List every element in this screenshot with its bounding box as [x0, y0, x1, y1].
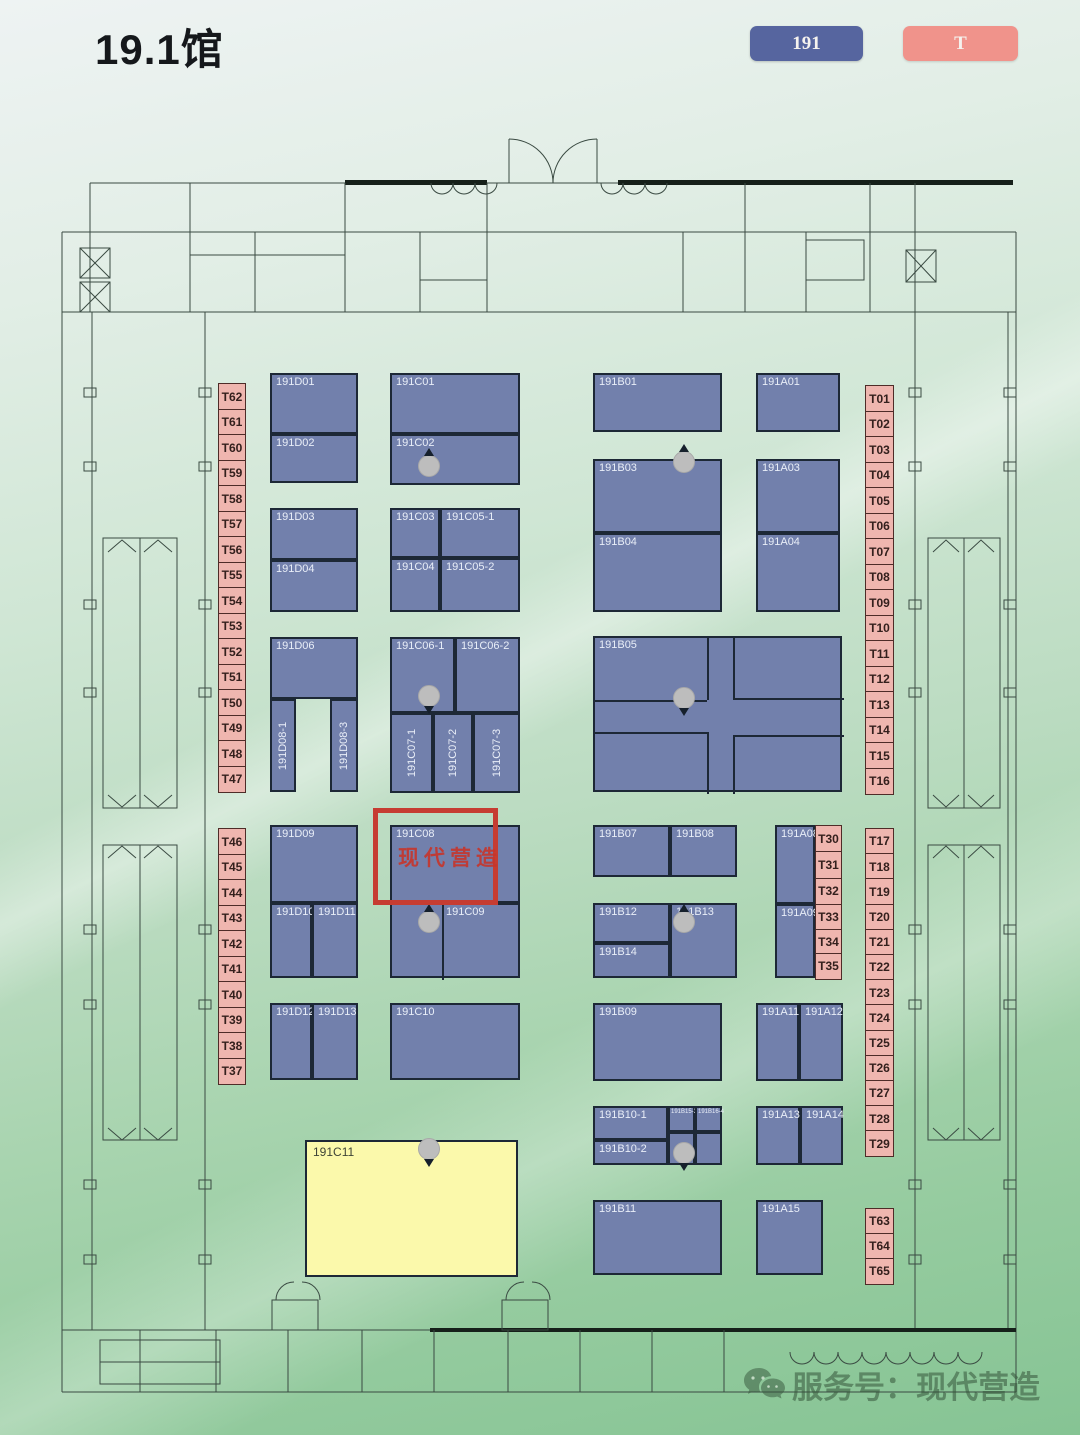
booth-191B15-3[interactable]: 191B15-3 — [668, 1106, 695, 1132]
booth-label: 191D04 — [276, 563, 315, 575]
booth-191C10[interactable]: 191C10 — [390, 1003, 520, 1080]
booth-label: 191B16-4 — [698, 1109, 724, 1115]
booth-T54[interactable]: T54 — [218, 587, 246, 614]
booth-label: 191D03 — [276, 511, 315, 523]
booth-T32[interactable]: T32 — [815, 878, 842, 906]
booth-191D12[interactable]: 191D12 — [270, 1003, 312, 1080]
booth-191A11[interactable]: 191A11 — [756, 1003, 799, 1081]
booth-label: 191A14 — [806, 1109, 844, 1121]
booth-T34[interactable]: T34 — [815, 929, 842, 955]
booth-191A04[interactable]: 191A04 — [756, 533, 840, 612]
booth-T05[interactable]: T05 — [865, 487, 894, 514]
booth-T13[interactable]: T13 — [865, 691, 894, 718]
booth-label: 191C05-2 — [446, 561, 494, 573]
booth-T12[interactable]: T12 — [865, 666, 894, 693]
booth-T02[interactable]: T02 — [865, 411, 894, 438]
booth-divider — [595, 732, 707, 734]
booth-label: 191B15-3 — [671, 1109, 697, 1115]
booth-label: 191C07-2 — [447, 729, 459, 777]
booth-T53[interactable]: T53 — [218, 613, 246, 640]
booth-label: 191A15 — [762, 1203, 800, 1215]
booth-label: 191D02 — [276, 437, 315, 449]
booth-label: 191B12 — [599, 906, 637, 918]
booth-T18[interactable]: T18 — [865, 853, 894, 880]
booth-191C07-1[interactable]: 191C07-1 — [390, 713, 433, 793]
booth-unlabeled[interactable] — [695, 1132, 722, 1165]
booth-T39[interactable]: T39 — [218, 1007, 246, 1034]
booth-191B12[interactable]: 191B12 — [593, 903, 670, 943]
booth-T40[interactable]: T40 — [218, 981, 246, 1008]
booth-T14[interactable]: T14 — [865, 717, 894, 744]
column-pillar-icon — [673, 1142, 695, 1164]
booth-label: 191A11 — [762, 1006, 799, 1018]
booth-T41[interactable]: T41 — [218, 956, 246, 983]
booth-191C04[interactable]: 191C04 — [390, 558, 440, 612]
booth-191B11[interactable]: 191B11 — [593, 1200, 722, 1275]
booth-T57[interactable]: T57 — [218, 511, 246, 538]
booth-label: 191B11 — [599, 1203, 636, 1215]
booth-divider — [707, 732, 709, 794]
booth-T26[interactable]: T26 — [865, 1055, 894, 1082]
booth-T23[interactable]: T23 — [865, 979, 894, 1006]
booth-191A09[interactable]: 191A09 — [775, 904, 815, 978]
booth-191A14[interactable]: 191A14 — [800, 1106, 843, 1165]
booth-T28[interactable]: T28 — [865, 1105, 894, 1132]
booth-191D08-3[interactable]: 191D08-3 — [330, 699, 358, 792]
booth-T04[interactable]: T04 — [865, 462, 894, 489]
booth-T47[interactable]: T47 — [218, 766, 246, 793]
booth-label: 191C03 — [396, 511, 435, 523]
booth-label: 191D10 — [276, 906, 315, 918]
booth-T37[interactable]: T37 — [218, 1058, 246, 1085]
booth-191B04[interactable]: 191B04 — [593, 533, 722, 612]
booth-label: 191B01 — [599, 376, 637, 388]
booth-191A15[interactable]: 191A15 — [756, 1200, 823, 1275]
booth-T31[interactable]: T31 — [815, 851, 842, 879]
column-pillar-icon — [418, 1138, 440, 1160]
column-pillar-icon — [673, 687, 695, 709]
booth-T17[interactable]: T17 — [865, 828, 894, 855]
booth-191B10-2[interactable]: 191B10-2 — [593, 1140, 668, 1165]
booth-191B08[interactable]: 191B08 — [670, 825, 737, 877]
booth-T30[interactable]: T30 — [815, 825, 842, 853]
booth-divider — [733, 638, 735, 698]
booth-divider — [733, 735, 735, 794]
booth-label: 191A04 — [762, 536, 800, 548]
booth-label: 191D08-1 — [277, 721, 289, 769]
booth-label: 191C06-1 — [396, 640, 444, 652]
booth-191C02[interactable]: 191C02 — [390, 434, 520, 485]
booth-191B01[interactable]: 191B01 — [593, 373, 722, 432]
booth-191D02[interactable]: 191D02 — [270, 434, 358, 483]
booth-T09[interactable]: T09 — [865, 589, 894, 616]
booth-T21[interactable]: T21 — [865, 929, 894, 956]
booth-T46[interactable]: T46 — [218, 828, 246, 855]
booth-T27[interactable]: T27 — [865, 1080, 894, 1107]
booth-divider — [733, 698, 844, 700]
booth-label: 191A12 — [805, 1006, 843, 1018]
booth-191C05-1[interactable]: 191C05-1 — [440, 508, 520, 558]
booth-T07[interactable]: T07 — [865, 538, 894, 565]
booth-T01[interactable]: T01 — [865, 385, 894, 412]
booth-label: 191B07 — [599, 828, 637, 840]
booth-label: 191A08 — [781, 828, 819, 840]
column-pillar-icon — [418, 685, 440, 707]
booth-label: 191A03 — [762, 462, 800, 474]
booth-191D08-1[interactable]: 191D08-1 — [270, 699, 296, 792]
booth-T06[interactable]: T06 — [865, 513, 894, 540]
booth-T11[interactable]: T11 — [865, 640, 894, 667]
booth-T35[interactable]: T35 — [815, 953, 842, 979]
booth-label: 191D13 — [318, 1006, 357, 1018]
booth-T48[interactable]: T48 — [218, 740, 246, 767]
booth-label: 191C07-1 — [406, 729, 418, 777]
booth-label: 191B08 — [676, 828, 714, 840]
booth-label: 191B14 — [599, 946, 637, 958]
watermark-text: 服务号：现代营造 — [792, 1362, 1040, 1407]
booth-T51[interactable]: T51 — [218, 664, 246, 691]
booth-label: 191B04 — [599, 536, 637, 548]
booth-label: 191D09 — [276, 828, 315, 840]
booth-T33[interactable]: T33 — [815, 904, 842, 930]
booth-191A12[interactable]: 191A12 — [799, 1003, 843, 1081]
booth-T29[interactable]: T29 — [865, 1130, 894, 1157]
column-pillar-icon — [673, 911, 695, 933]
booth-191C06-2[interactable]: 191C06-2 — [455, 637, 520, 713]
booth-191D10[interactable]: 191D10 — [270, 903, 312, 978]
booth-label: 191A01 — [762, 376, 800, 388]
booth-divider — [733, 735, 844, 737]
booth-T44[interactable]: T44 — [218, 879, 246, 906]
booth-label: 191C07-3 — [491, 729, 503, 777]
booth-T20[interactable]: T20 — [865, 904, 894, 931]
booth-T25[interactable]: T25 — [865, 1030, 894, 1057]
booth-191D11[interactable]: 191D11 — [312, 903, 358, 978]
booth-T52[interactable]: T52 — [218, 638, 246, 665]
booth-label: 191D01 — [276, 376, 315, 388]
booth-191C05-2[interactable]: 191C05-2 — [440, 558, 520, 612]
booth-T43[interactable]: T43 — [218, 905, 246, 932]
booth-divider — [442, 905, 444, 980]
booth-191A13[interactable]: 191A13 — [756, 1106, 800, 1165]
booth-label: 191B03 — [599, 462, 637, 474]
booth-T56[interactable]: T56 — [218, 536, 246, 563]
highlight-label: 现代营造 — [398, 842, 502, 872]
booth-label: 191A09 — [781, 907, 819, 919]
booth-191C01[interactable]: 191C01 — [390, 373, 520, 434]
booth-T38[interactable]: T38 — [218, 1032, 246, 1059]
booth-191B05[interactable]: 191B05 — [593, 636, 842, 792]
booth-T58[interactable]: T58 — [218, 485, 246, 512]
booth-191D01[interactable]: 191D01 — [270, 373, 358, 434]
booth-T61[interactable]: T61 — [218, 409, 246, 436]
booth-label: 191A13 — [762, 1109, 800, 1121]
booth-T63[interactable]: T63 — [865, 1208, 894, 1235]
booth-label: 191C09 — [446, 906, 485, 918]
booth-T62[interactable]: T62 — [218, 383, 246, 410]
booth-T60[interactable]: T60 — [218, 434, 246, 461]
booth-191D06[interactable]: 191D06 — [270, 637, 358, 699]
booth-label: 191C10 — [396, 1006, 435, 1018]
booth-label: 191D11 — [318, 906, 356, 918]
booth-191B10-1[interactable]: 191B10-1 — [593, 1106, 668, 1140]
booth-191A03[interactable]: 191A03 — [756, 459, 840, 533]
column-pillar-icon — [418, 911, 440, 933]
watermark: 服务号：现代营造 — [742, 1362, 1040, 1407]
booth-label: 191C05-1 — [446, 511, 494, 523]
booth-191B09[interactable]: 191B09 — [593, 1003, 722, 1081]
booth-191D03[interactable]: 191D03 — [270, 508, 358, 560]
booth-191D04[interactable]: 191D04 — [270, 560, 358, 612]
column-pillar-icon — [418, 455, 440, 477]
booth-T45[interactable]: T45 — [218, 854, 246, 881]
booth-label: 191B09 — [599, 1006, 637, 1018]
booth-191C07-3[interactable]: 191C07-3 — [473, 713, 520, 793]
booth-label: 191B05 — [599, 639, 637, 651]
booth-T64[interactable]: T64 — [865, 1233, 894, 1260]
booth-T24[interactable]: T24 — [865, 1004, 894, 1031]
booth-T10[interactable]: T10 — [865, 615, 894, 642]
booth-T49[interactable]: T49 — [218, 715, 246, 742]
wechat-icon — [742, 1365, 786, 1405]
booth-label: 191D08-3 — [338, 721, 350, 769]
booth-191B03[interactable]: 191B03 — [593, 459, 722, 533]
booth-191C03[interactable]: 191C03 — [390, 508, 440, 558]
booth-T50[interactable]: T50 — [218, 689, 246, 716]
booth-T08[interactable]: T08 — [865, 564, 894, 591]
booth-label: 191C11 — [313, 1145, 354, 1159]
booth-T03[interactable]: T03 — [865, 436, 894, 463]
booth-T59[interactable]: T59 — [218, 460, 246, 487]
booth-191D09[interactable]: 191D09 — [270, 825, 358, 903]
floorplan-architecture — [0, 0, 1080, 1435]
booth-191C07-2[interactable]: 191C07-2 — [433, 713, 473, 793]
booth-191C11[interactable]: 191C11 — [305, 1140, 518, 1277]
booth-191B14[interactable]: 191B14 — [593, 943, 670, 978]
booth-label: 191C04 — [396, 561, 435, 573]
booth-T19[interactable]: T19 — [865, 878, 894, 905]
booth-191A01[interactable]: 191A01 — [756, 373, 840, 432]
booth-191D13[interactable]: 191D13 — [312, 1003, 358, 1080]
column-pillar-icon — [673, 451, 695, 473]
booth-191B16-4[interactable]: 191B16-4 — [695, 1106, 722, 1132]
booth-T65[interactable]: T65 — [865, 1258, 894, 1285]
floorplan-page: 19.1馆 191 T — [0, 0, 1080, 1435]
booth-label: 191D12 — [276, 1006, 315, 1018]
booth-label: 191B10-1 — [599, 1109, 647, 1121]
booth-label: 191C01 — [396, 376, 435, 388]
booth-divider — [707, 638, 709, 700]
booth-191B07[interactable]: 191B07 — [593, 825, 670, 877]
booth-T42[interactable]: T42 — [218, 930, 246, 957]
booth-T15[interactable]: T15 — [865, 742, 894, 769]
booth-191A08[interactable]: 191A08 — [775, 825, 815, 904]
booth-label: 191D06 — [276, 640, 315, 652]
booth-T55[interactable]: T55 — [218, 562, 246, 589]
booth-label: 191C06-2 — [461, 640, 509, 652]
booth-T22[interactable]: T22 — [865, 954, 894, 981]
booth-label: 191B10-2 — [599, 1143, 647, 1155]
booth-191C09[interactable]: 191C09 — [390, 903, 520, 978]
booth-T16[interactable]: T16 — [865, 768, 894, 795]
